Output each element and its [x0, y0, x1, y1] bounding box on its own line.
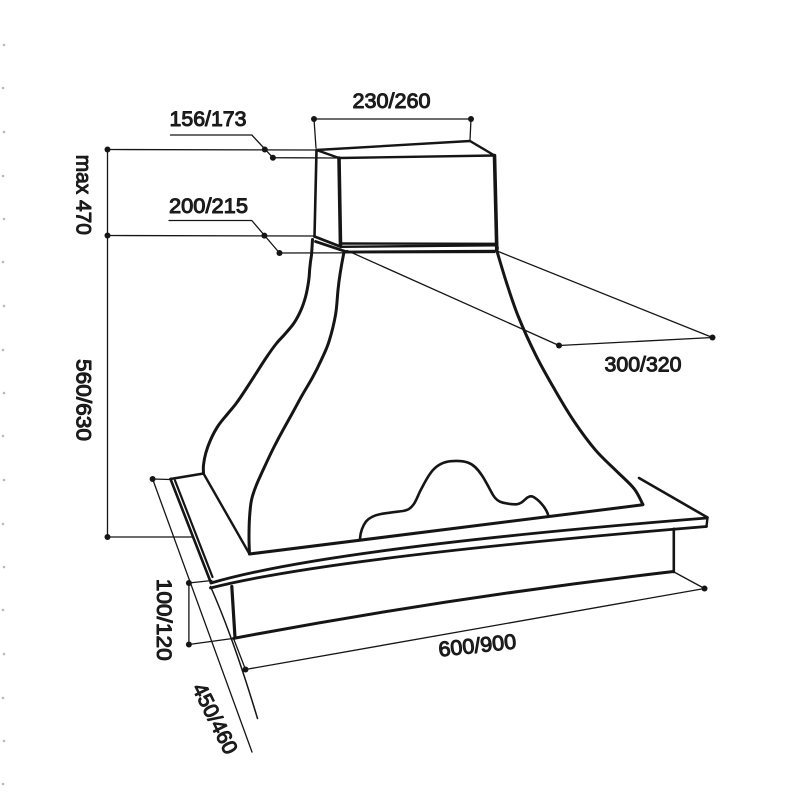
svg-text:230/260: 230/260	[353, 90, 431, 113]
svg-text:450/460: 450/460	[187, 680, 241, 758]
svg-text:560/630: 560/630	[72, 359, 95, 441]
svg-text:156/173: 156/173	[170, 108, 247, 131]
svg-text:max 470: max 470	[72, 155, 95, 235]
svg-text:100/120: 100/120	[152, 579, 175, 661]
svg-text:600/900: 600/900	[437, 631, 517, 662]
svg-text:200/215: 200/215	[169, 195, 248, 218]
svg-text:300/320: 300/320	[605, 354, 682, 377]
